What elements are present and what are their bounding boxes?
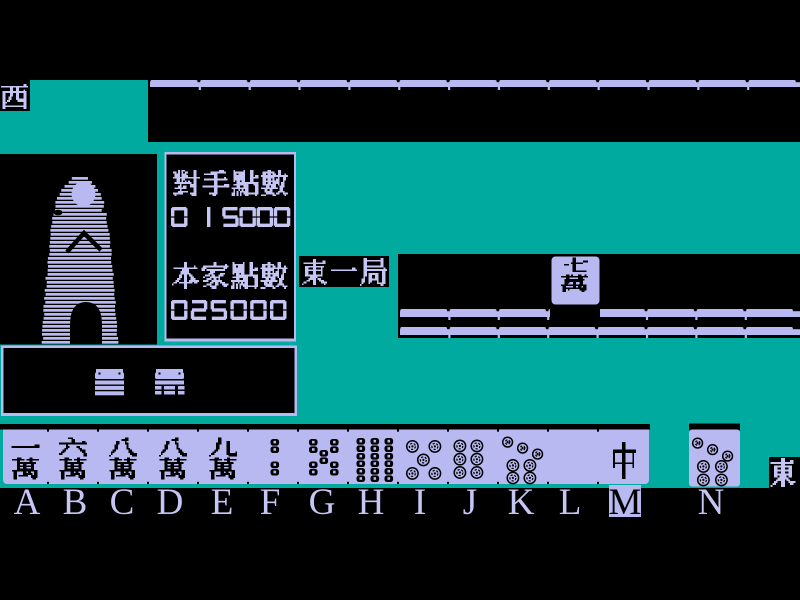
svg-text:N: N: [698, 482, 725, 523]
svg-text:M: M: [609, 482, 642, 523]
svg-text:B: B: [63, 482, 88, 523]
svg-text:D: D: [157, 482, 184, 523]
svg-text:F: F: [260, 482, 281, 523]
svg-text:K: K: [508, 482, 535, 523]
svg-text:G: G: [309, 482, 336, 523]
svg-text:L: L: [559, 482, 582, 523]
svg-text:H: H: [358, 482, 385, 523]
svg-text:E: E: [211, 482, 234, 523]
svg-text:J: J: [463, 482, 477, 523]
svg-text:I: I: [414, 482, 426, 523]
svg-text:C: C: [110, 482, 135, 523]
svg-text:A: A: [14, 482, 41, 523]
